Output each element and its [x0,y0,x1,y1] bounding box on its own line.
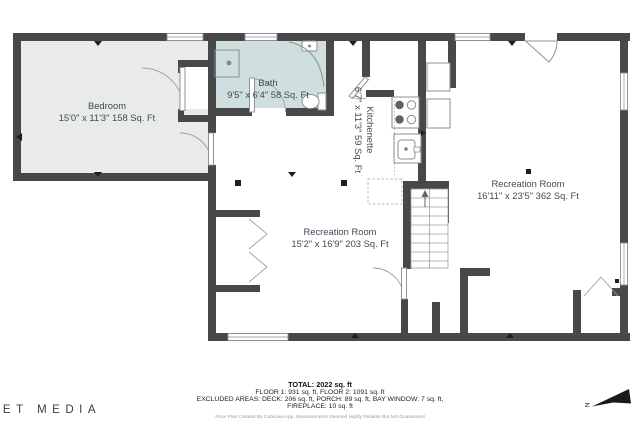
burner-icon [395,115,403,123]
top-door-gap [525,33,557,41]
open-below-outline [368,179,402,204]
window [167,34,203,41]
kitchenette-label-group: Kitchenette 6'7" x 11'3" 59 Sq. Ft [353,87,376,174]
vanity-faucet [227,61,232,66]
cabinet [427,99,450,128]
post [341,180,347,186]
disclaimer: Floor Plan Created By Cubicasa App. Meas… [215,414,425,420]
excluded-areas-line1: EXCLUDED AREAS: DECK: 206 sq. ft, PORCH:… [197,396,444,403]
north-arrow-icon [592,389,631,407]
bath-dims: 9'5" x 6'4" 58 Sq. Ft [227,89,309,100]
faucet [414,147,420,152]
room-fills [21,41,326,173]
north-label: N [583,403,590,408]
rec-room-small-label: Recreation Room [304,226,377,237]
opening-marker [349,41,357,46]
window [621,243,628,285]
floor-areas: FLOOR 1: 931 sq. ft, FLOOR 2: 1091 sq. f… [255,389,384,396]
bifold-door [249,252,267,282]
bedroom-dims: 15'0" x 11'3" 158 Sq. Ft [59,112,156,123]
window [455,34,490,41]
nauset-media-logo: NAUSET MEDIA [0,404,101,416]
total-area: TOTAL: 2022 sq. ft [288,380,352,389]
opening-marker [288,172,296,177]
closet-door-leaf [180,68,185,111]
rec-room-large-label: Recreation Room [492,178,565,189]
kitchenette-label: Kitchenette [365,107,376,154]
cabinet [427,63,450,91]
bedroom-closet-floor [184,67,208,109]
post [235,180,241,186]
window [621,73,628,110]
window [228,334,288,341]
floor-plan-drawing: Bedroom 15'0" x 11'3" 158 Sq. Ft Bath 9'… [0,0,640,427]
rec-room-large-dims: 16'11" x 23'5" 362 Sq. Ft [477,190,579,201]
understairs-door-arc [373,268,404,299]
opening-marker [508,41,516,46]
kitchenette-dims: 6'7" x 11'3" 59 Sq. Ft [353,87,364,174]
bifold-door [249,219,267,249]
burner-icon [395,101,403,109]
north-arrow: N [583,389,631,408]
area-summary: TOTAL: 2022 sq. ft FLOOR 1: 931 sq. ft, … [197,380,444,420]
understairs-door-leaf [402,268,407,299]
window [245,34,277,41]
excluded-areas-line2: FIREPLACE: 10 sq. ft [287,403,353,410]
floor-plan-page: Bedroom 15'0" x 11'3" 158 Sq. Ft Bath 9'… [0,0,640,427]
bedroom-door-leaf [209,133,214,165]
rec-room-small-dims: 15'2" x 16'9" 203 Sq. Ft [291,238,389,249]
bedroom-label: Bedroom [88,100,126,111]
entry-door [526,41,558,62]
post [526,169,531,174]
staircase [411,189,448,268]
sink-drain-icon [308,45,311,48]
bath-label: Bath [258,77,277,88]
sink-drain-icon [404,147,408,151]
post [615,279,619,283]
stove [392,97,419,128]
